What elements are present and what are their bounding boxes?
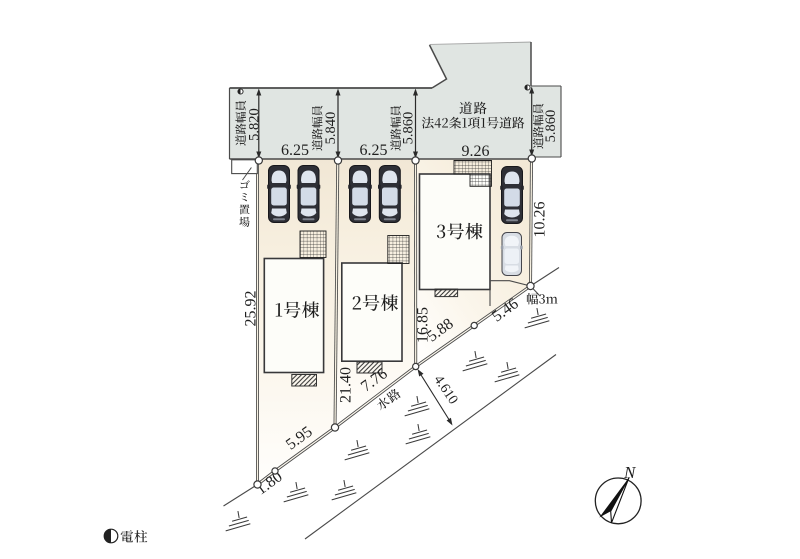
svg-text:5.860: 5.860 bbox=[401, 112, 417, 145]
svg-text:5.820: 5.820 bbox=[247, 108, 263, 141]
svg-text:6.25: 6.25 bbox=[360, 142, 388, 159]
svg-text:9.26: 9.26 bbox=[462, 143, 490, 160]
svg-text:21.40: 21.40 bbox=[338, 367, 355, 403]
svg-text:N: N bbox=[623, 463, 637, 482]
svg-text:6.25: 6.25 bbox=[281, 142, 309, 159]
svg-text:5.860: 5.860 bbox=[543, 110, 559, 143]
svg-text:5.840: 5.840 bbox=[323, 112, 339, 145]
svg-text:25.92: 25.92 bbox=[243, 291, 260, 327]
svg-text:10.26: 10.26 bbox=[532, 202, 549, 238]
